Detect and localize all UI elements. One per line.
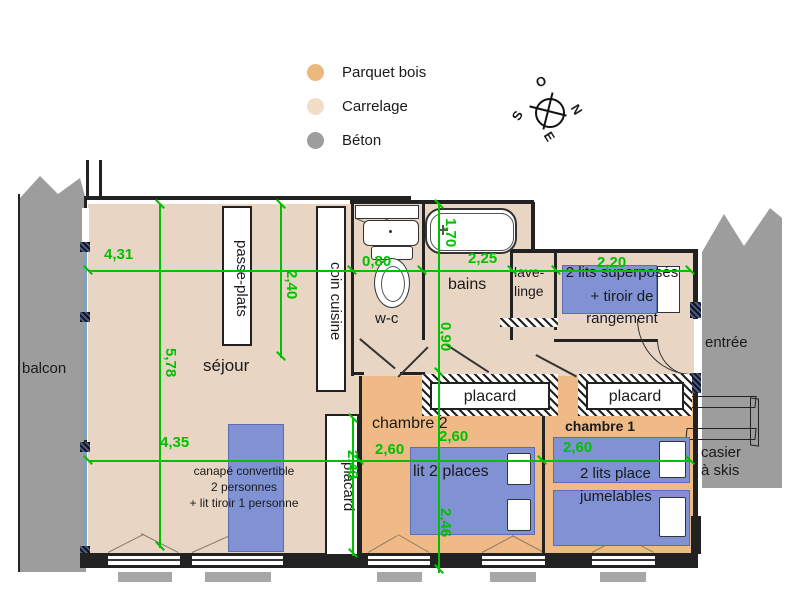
placard-chambre2-label: placard — [464, 388, 516, 405]
bunk-text-line3: rangement — [552, 310, 692, 327]
dimension-1-70: 1,70 — [442, 218, 459, 247]
wall — [510, 249, 698, 253]
wall — [531, 202, 535, 251]
passe-plats-label: passe-plats — [224, 212, 250, 344]
window — [592, 559, 655, 561]
window — [108, 559, 180, 561]
double-bed-label: lit 2 places — [413, 463, 489, 481]
dimension-5-78: 5,78 — [162, 348, 179, 377]
wall — [545, 556, 592, 565]
entree-label: entrée — [705, 334, 748, 351]
twin-beds-label-line1: 2 lits place — [580, 465, 651, 482]
window — [83, 250, 87, 312]
floor-plan-canvas: Parquet bois Carrelage Béton O N S E bal… — [0, 0, 787, 591]
dimension-2-25: 2,25 — [468, 250, 497, 267]
stair-rail — [750, 397, 759, 446]
placard-chambre2: placard — [430, 382, 550, 410]
passe-plats-counter: passe-plats — [222, 206, 252, 346]
compass-east: E — [541, 129, 558, 144]
window — [83, 450, 87, 546]
bunk-text-line2: + tiroir de — [552, 288, 692, 305]
pillow — [507, 499, 531, 531]
casier-label-line2: à skis — [701, 462, 739, 479]
wall — [655, 556, 698, 565]
window-sill — [377, 572, 422, 582]
wall-hatched — [500, 318, 558, 327]
wall — [18, 194, 20, 572]
dimension-2-60-ch2-left: 2,60 — [375, 441, 404, 458]
placard-chambre1: placard — [586, 382, 684, 410]
dimension-line-horizontal-bottom — [88, 460, 690, 462]
casier-label-line1: casier — [701, 444, 741, 461]
wall — [80, 553, 698, 568]
wall-section-block — [80, 442, 90, 452]
compass-west: O — [534, 73, 548, 90]
wall — [351, 372, 364, 375]
legend-parquet-label: Parquet bois — [342, 64, 426, 81]
legend-carrelage-swatch — [307, 98, 324, 115]
wall — [691, 516, 701, 554]
wall — [350, 200, 534, 204]
sofa-text-line1: canapé convertible — [183, 464, 305, 478]
window-sill — [118, 572, 172, 582]
wall-section-block — [80, 312, 90, 322]
chambre1-label: chambre 1 — [565, 418, 635, 434]
legend-beton-swatch — [307, 132, 324, 149]
wall — [542, 410, 545, 556]
window — [368, 559, 430, 561]
wall — [86, 160, 89, 198]
wall — [99, 160, 102, 198]
legend-beton-label: Béton — [342, 132, 381, 149]
wall — [80, 556, 108, 565]
dimension-2-40: 2,40 — [283, 270, 300, 299]
wc-shelf — [355, 205, 419, 219]
compass-rose: O N S E — [505, 70, 605, 160]
window-sill — [600, 572, 646, 582]
sofa-text-line2: 2 personnes — [183, 480, 305, 494]
window-sill — [490, 572, 536, 582]
dimension-line-2-40 — [280, 204, 282, 358]
sink — [363, 220, 419, 246]
pillow — [659, 497, 686, 537]
balcony-door-opening — [82, 208, 89, 242]
window — [482, 559, 545, 561]
twin-beds-label-line2: jumelables — [580, 488, 652, 505]
dimension-4-31: 4,31 — [104, 246, 133, 263]
dimension-2-60-ch2: 2,60 — [439, 428, 468, 445]
compass-south: S — [509, 108, 526, 123]
wall-section-block — [80, 242, 90, 252]
window — [83, 320, 87, 440]
balcon-label: balcon — [22, 360, 66, 377]
window-sill — [205, 572, 271, 582]
legend-parquet-swatch — [307, 64, 324, 81]
dimension-2-46: 2,46 — [437, 508, 454, 537]
placard-chambre1-label: placard — [609, 388, 661, 405]
coin-cuisine-label: coin cuisine — [318, 212, 344, 390]
dimension-0-90: 0,90 — [437, 322, 454, 351]
dimension-0-80: 0,80 — [362, 253, 391, 270]
chambre2-label: chambre 2 — [372, 415, 448, 433]
dimension-2-43: 2,43 — [344, 450, 361, 479]
sink-drain — [389, 230, 392, 233]
compass-north: N — [568, 102, 586, 118]
lave-linge-label-line1: lave- — [514, 264, 544, 280]
dimension-line-2-43 — [352, 418, 354, 556]
pillow — [507, 453, 531, 485]
wc-label: w-c — [375, 310, 398, 327]
lave-linge-label-line2: linge — [514, 283, 544, 299]
window — [192, 559, 283, 561]
wall — [351, 204, 354, 376]
wall — [180, 556, 192, 565]
dimension-2-60-ch1: 2,60 — [563, 439, 592, 456]
legend-carrelage-label: Carrelage — [342, 98, 408, 115]
dimension-4-35: 4,35 — [160, 434, 189, 451]
dimension-line-5-78 — [159, 204, 161, 548]
coin-cuisine-counter: coin cuisine — [316, 206, 346, 392]
bains-label: bains — [448, 276, 486, 294]
sejour-label: séjour — [203, 356, 249, 376]
dimension-2-20: 2,20 — [597, 254, 626, 271]
sofa-text-line3: + lit tiroir 1 personne — [176, 496, 312, 510]
